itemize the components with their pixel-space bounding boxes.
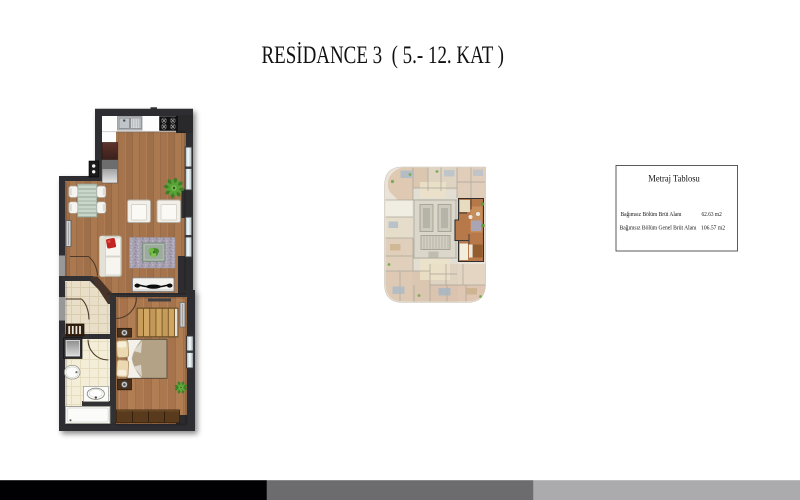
svg-text:106.57 m2: 106.57 m2	[701, 226, 725, 232]
svg-text:Bağımsız Bölüm Brüt Alanı: Bağımsız Bölüm Brüt Alanı	[621, 211, 682, 218]
svg-text:Bağımsız Bölüm Genel Brüt Alan: Bağımsız Bölüm Genel Brüt Alanı	[620, 225, 697, 232]
svg-text:62.63 m2: 62.63 m2	[702, 212, 722, 218]
svg-text:Metraj Tablosu: Metraj Tablosu	[648, 174, 700, 184]
svg-text:RESİDANCE 3 ( 5.- 12. KAT ): RESİDANCE 3 ( 5.- 12. KAT )	[262, 42, 505, 69]
